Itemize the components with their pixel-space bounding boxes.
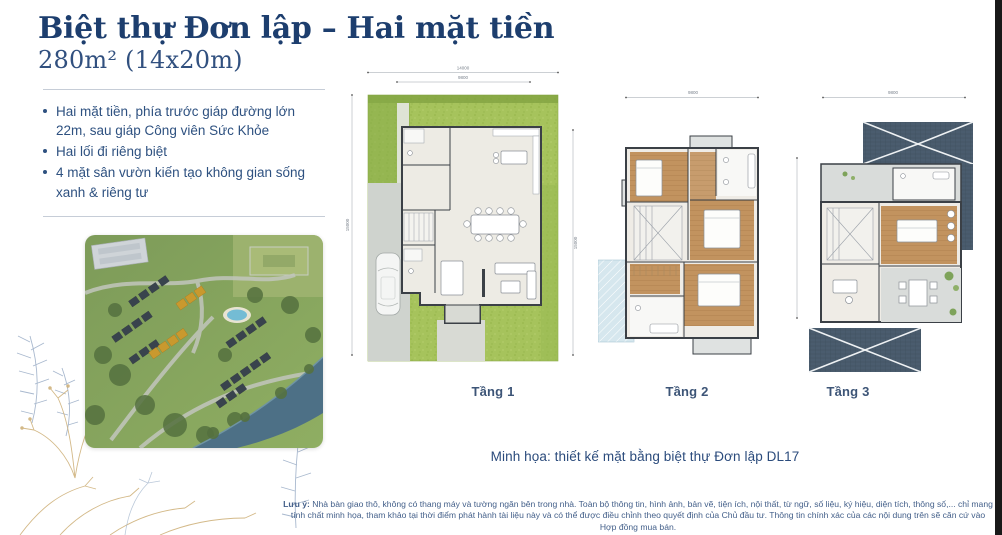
dim-label: 9800: [688, 90, 699, 95]
floor-label-tang-2: Tầng 2: [632, 384, 742, 399]
highlight-text: Hai mặt tiền, phía trước giáp đường lớn …: [56, 102, 325, 140]
aerial-render-image: [85, 235, 323, 448]
floor-plan-tang-3: 9800: [793, 88, 988, 378]
disclaimer-label: Lưu ý:: [283, 499, 310, 509]
floor-label-tang-3: Tầng 3: [793, 384, 903, 399]
dim-label: 9800: [458, 75, 469, 80]
dim-label: 9800: [888, 90, 899, 95]
page-title: Biệt thự Đơn lập – Hai mặt tiền: [38, 12, 554, 45]
bullet-icon: [43, 149, 47, 153]
highlights-list: Hai mặt tiền, phía trước giáp đường lớn …: [43, 102, 325, 202]
highlight-item: 4 mặt sân vườn kiến tạo không gian sống …: [43, 163, 325, 201]
floor-plan-tang-2: 9800: [598, 88, 783, 378]
highlight-text: Hai lối đi riêng biệt: [56, 142, 167, 161]
bullet-icon: [43, 170, 47, 174]
highlight-item: Hai mặt tiền, phía trước giáp đường lớn …: [43, 102, 325, 140]
highlight-text: 4 mặt sân vườn kiến tạo không gian sống …: [56, 163, 325, 201]
highlight-item: Hai lối đi riêng biệt: [43, 142, 325, 161]
dim-label: 15000: [573, 236, 578, 249]
floor-plan-tang-1: 14000 9800 15000 15000: [345, 65, 580, 375]
screen-edge-bar: [995, 0, 1002, 535]
dim-label: 15000: [345, 218, 350, 231]
dim-label: 14000: [457, 66, 470, 71]
brochure-page: Biệt thự Đơn lập – Hai mặt tiền 280m² (1…: [0, 0, 1002, 535]
disclaimer-text: Nhà bàn giao thô, không có thang máy và …: [291, 499, 993, 532]
floor-label-tang-1: Tầng 1: [438, 384, 548, 399]
bullet-icon: [43, 109, 47, 113]
page-subtitle: 280m² (14x20m): [38, 46, 243, 74]
disclaimer-note: Lưu ý: Nhà bàn giao thô, không có thang …: [283, 499, 993, 533]
plans-caption: Minh họa: thiết kế mặt bằng biệt thự Đơn…: [345, 449, 945, 464]
highlights-card: Hai mặt tiền, phía trước giáp đường lớn …: [43, 89, 325, 217]
